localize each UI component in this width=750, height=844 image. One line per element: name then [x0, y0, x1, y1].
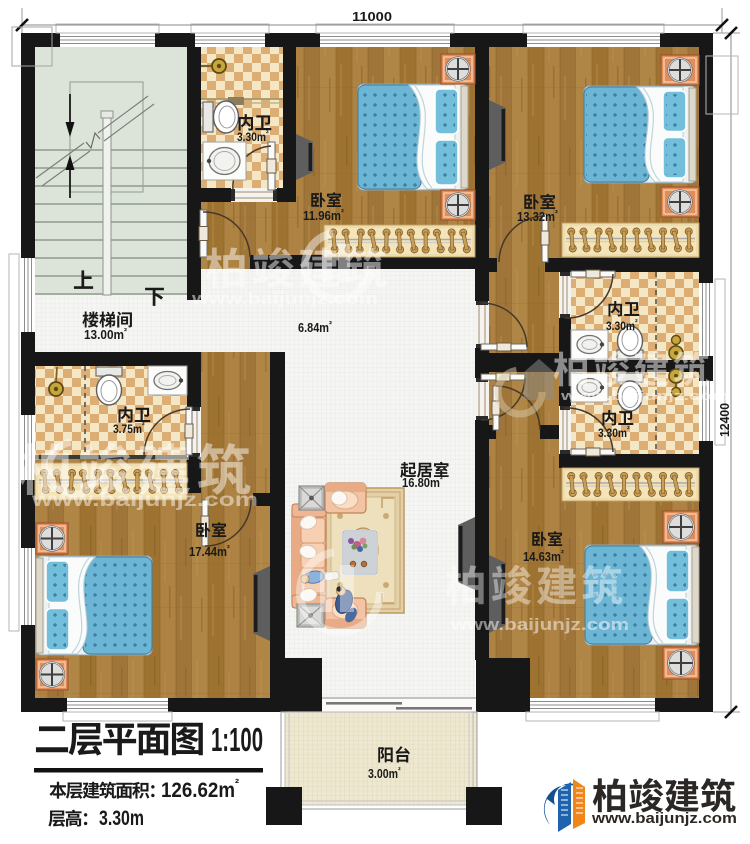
svg-text:126.62m: 126.62m — [161, 779, 235, 802]
svg-text:11000: 11000 — [352, 9, 392, 24]
svg-text:3.30m: 3.30m — [598, 426, 627, 440]
svg-text:12400: 12400 — [717, 403, 732, 437]
svg-text:3.30m: 3.30m — [99, 807, 144, 830]
svg-text:²: ² — [627, 425, 630, 434]
svg-text:²: ² — [341, 207, 344, 217]
svg-text:17.44m: 17.44m — [189, 545, 227, 559]
svg-text:3.30m: 3.30m — [606, 319, 635, 333]
svg-text:²: ² — [142, 421, 145, 430]
svg-text:16.80m: 16.80m — [402, 476, 440, 490]
svg-text:²: ² — [227, 543, 230, 553]
svg-text:13.00m: 13.00m — [84, 327, 124, 342]
svg-text:13.32m: 13.32m — [517, 210, 555, 224]
svg-text:²: ² — [124, 326, 127, 336]
svg-text:²: ² — [555, 208, 558, 218]
svg-text:www.baijunjz.com: www.baijunjz.com — [450, 615, 629, 634]
svg-text:²: ² — [235, 776, 239, 790]
svg-text:3.30m: 3.30m — [237, 130, 266, 144]
svg-text:www.baijunjz.com: www.baijunjz.com — [591, 810, 737, 827]
svg-text:3.75m: 3.75m — [113, 422, 142, 436]
svg-text:3.00m: 3.00m — [368, 767, 398, 781]
svg-text:1:100: 1:100 — [211, 721, 263, 758]
svg-text:www.baijunjz.com: www.baijunjz.com — [560, 388, 729, 403]
svg-text:14.63m: 14.63m — [523, 550, 561, 564]
svg-text:²: ² — [398, 766, 401, 775]
svg-text:²: ² — [266, 129, 269, 138]
svg-text:²: ² — [635, 318, 638, 327]
svg-text:²: ² — [561, 548, 564, 558]
svg-text:²: ² — [440, 474, 443, 484]
svg-text:²: ² — [329, 319, 332, 329]
svg-text:6.84m: 6.84m — [298, 320, 329, 335]
svg-text:11.96m: 11.96m — [303, 209, 341, 223]
